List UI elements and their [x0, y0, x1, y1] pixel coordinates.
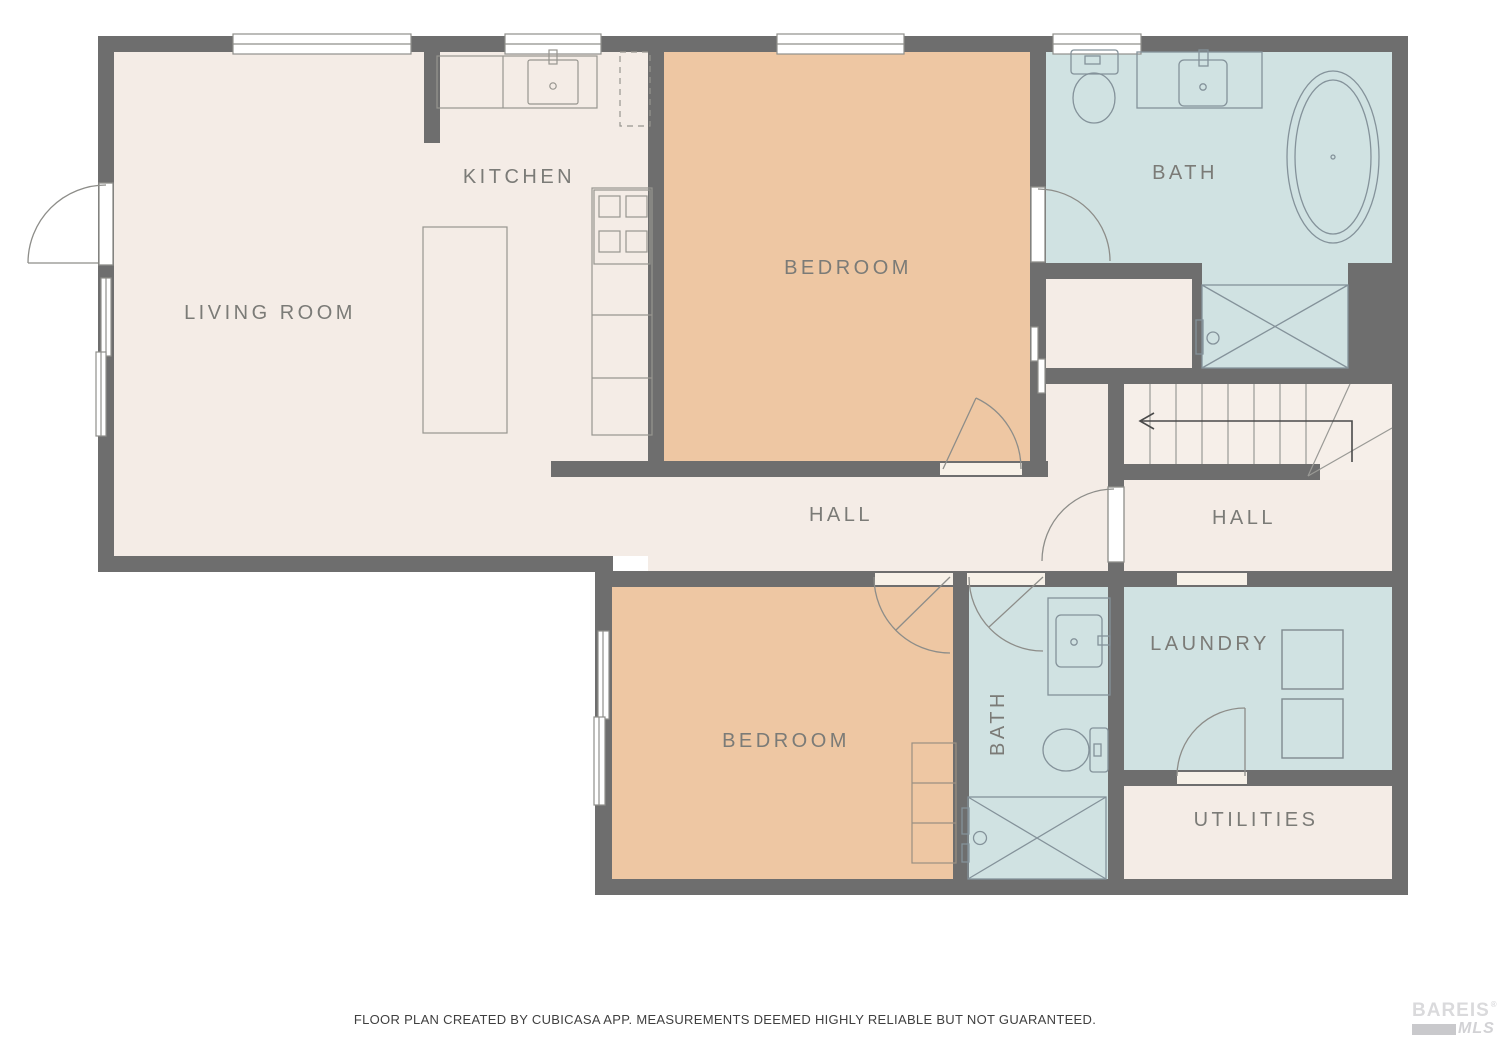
door-opening — [967, 573, 1045, 585]
window-icon — [96, 352, 106, 436]
wall — [1124, 770, 1408, 786]
window-icon — [233, 34, 411, 54]
door-opening — [875, 573, 953, 585]
room-vestibule — [1046, 384, 1108, 571]
label-bath-top: BATH — [1152, 162, 1218, 184]
logo-bar — [1412, 1024, 1456, 1035]
label-living-room: LIVING ROOM — [184, 302, 356, 324]
room-bath-top — [1046, 52, 1392, 279]
label-bath-bottom: BATH — [987, 690, 1009, 756]
floor-plan-page: LIVING ROOM KITCHEN BEDROOM BATH HALL HA… — [0, 0, 1500, 1054]
window-icon — [1053, 34, 1141, 54]
wall — [1108, 464, 1320, 480]
room-laundry — [1124, 587, 1392, 770]
door-opening — [1177, 573, 1247, 585]
wall — [1348, 263, 1408, 380]
window-icon — [505, 34, 601, 54]
logo-mls: MLS — [1458, 1021, 1495, 1037]
label-kitchen: KITCHEN — [463, 166, 575, 188]
floor-plan: LIVING ROOM KITCHEN BEDROOM BATH HALL HA… — [0, 0, 1500, 1054]
wall — [1392, 36, 1408, 279]
label-laundry: LAUNDRY — [1150, 633, 1270, 655]
wall — [1030, 263, 1202, 279]
wall — [595, 879, 1408, 895]
window-icon — [594, 717, 605, 805]
wall — [98, 556, 613, 572]
wall — [1392, 368, 1408, 895]
room-shower-top — [1202, 263, 1348, 368]
door-opening — [940, 463, 1022, 475]
room-utilities — [1124, 786, 1392, 879]
window-icon — [777, 34, 904, 54]
label-hall-main: HALL — [809, 504, 873, 526]
window-icon — [598, 631, 609, 719]
label-utilities: UTILITIES — [1194, 809, 1319, 831]
entry-door-icon — [28, 183, 113, 265]
room-closet — [1046, 279, 1192, 368]
label-bedroom-bottom: BEDROOM — [722, 730, 850, 752]
label-bedroom-top: BEDROOM — [784, 257, 912, 279]
registered-mark-icon: ® — [1491, 1001, 1498, 1009]
room-hall-main — [648, 477, 1108, 571]
wall — [424, 36, 440, 143]
window-icon — [101, 278, 111, 356]
disclaimer-text: FLOOR PLAN CREATED BY CUBICASA APP. MEAS… — [0, 1012, 1450, 1027]
logo-name: BAREIS — [1412, 1001, 1490, 1020]
bareis-mls-logo: BAREIS® MLS — [1412, 1001, 1496, 1037]
door-opening — [1177, 772, 1247, 784]
label-hall-right: HALL — [1212, 507, 1276, 529]
